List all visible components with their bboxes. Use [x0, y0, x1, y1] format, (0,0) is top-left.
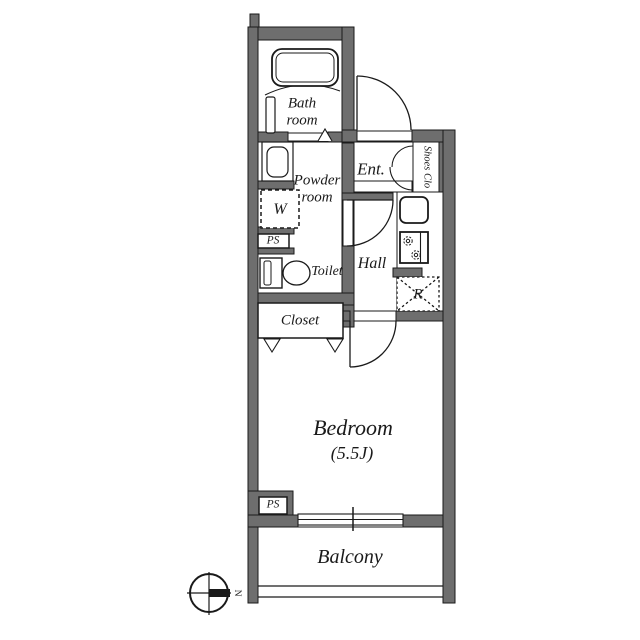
- bath-counter-icon: [266, 97, 275, 133]
- bathtub-icon: [272, 49, 338, 86]
- compass-icon: [187, 572, 231, 615]
- closet-label: Closet: [281, 314, 319, 329]
- washing-machine-label: W: [273, 202, 286, 218]
- stove-icon: [400, 232, 428, 263]
- bedroom-size-label: (5.5J): [331, 444, 373, 462]
- burner-icon: [412, 251, 420, 259]
- pipe-space-upper-label: PS: [267, 235, 280, 247]
- powder-room-label-line2: room: [301, 191, 332, 206]
- kitchen-sink-icon: [400, 197, 428, 223]
- front-door: [357, 76, 411, 130]
- compass-north-label: N: [231, 590, 241, 597]
- floor-plan: Bath room Powder room Ent. Shoes Clo Hal…: [0, 0, 640, 640]
- bathroom-label-line2: room: [286, 114, 317, 129]
- shoes-closet-label: Shoes Clo: [421, 146, 432, 188]
- balcony-label: Balcony: [317, 547, 383, 567]
- hall-label: Hall: [358, 256, 386, 272]
- burner-icon: [404, 237, 412, 245]
- bathroom-label-line1: Bath: [288, 97, 316, 112]
- toilet-label: Toilet: [311, 265, 342, 279]
- washbasin-icon: [262, 142, 293, 181]
- floor-plan-drawing: [0, 0, 640, 640]
- bedroom-label: Bedroom: [313, 417, 393, 439]
- powder-room-label-line1: Powder: [294, 174, 341, 189]
- entrance-label: Ent.: [357, 161, 385, 178]
- pipe-space-lower-label: PS: [267, 499, 280, 511]
- refrigerator-label: R: [413, 288, 422, 303]
- balcony-railing: [258, 586, 443, 597]
- compass-north-bar: [209, 589, 230, 597]
- entrance-step: [347, 181, 412, 192]
